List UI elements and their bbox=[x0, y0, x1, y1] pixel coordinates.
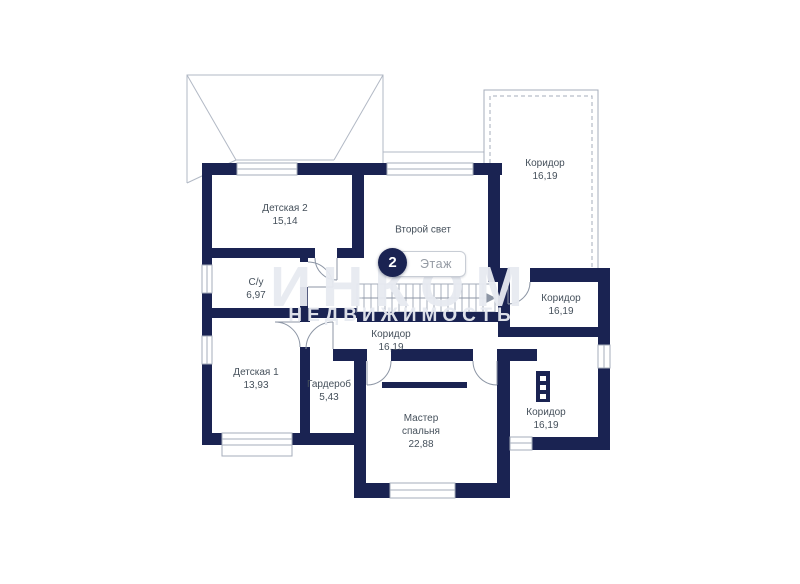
room-label-detskaya-2: Детская 2 15,14 bbox=[262, 203, 307, 229]
room-label-master-bedroom: Мастер спальня 22,88 bbox=[393, 413, 449, 451]
room-label-koridor-lower-right: Коридор 16,19 bbox=[526, 407, 566, 433]
room-label-koridor-upper-right: Коридор 16,19 bbox=[541, 293, 581, 319]
floor-badge: Этаж 2 bbox=[378, 248, 472, 278]
room-area: 16,19 bbox=[526, 420, 566, 433]
room-name: Коридор bbox=[525, 158, 565, 169]
room-name: Мастер спальня bbox=[402, 413, 440, 437]
room-label-koridor-center: Коридор 16,19 bbox=[371, 329, 411, 355]
watermark-subtitle: НЕДВИЖИМОСТЬ bbox=[288, 305, 515, 327]
room-label-vtoroy-svet: Второй свет bbox=[395, 225, 451, 238]
room-area: 13,93 bbox=[233, 380, 278, 393]
room-name: Гардероб bbox=[307, 379, 351, 390]
room-name: Коридор bbox=[526, 407, 566, 418]
room-label-koridor-terrace: Коридор 16,19 bbox=[525, 158, 565, 184]
floor-number: 2 bbox=[388, 254, 396, 271]
room-name: Второй свет bbox=[395, 225, 451, 236]
room-name: Коридор bbox=[541, 293, 581, 304]
floor-badge-label: Этаж bbox=[406, 257, 452, 271]
room-area: 16,19 bbox=[525, 171, 565, 184]
room-label-detskaya-1: Детская 1 13,93 bbox=[233, 367, 278, 393]
room-name: Коридор bbox=[371, 329, 411, 340]
room-label-su: С/у 6,97 bbox=[246, 277, 265, 303]
room-name: Детская 1 bbox=[233, 367, 278, 378]
room-area: 16,19 bbox=[371, 342, 411, 355]
room-name: С/у bbox=[249, 277, 264, 288]
room-area: 6,97 bbox=[246, 290, 265, 303]
room-area: 5,43 bbox=[307, 392, 351, 405]
room-name: Детская 2 bbox=[262, 203, 307, 214]
room-label-garderob: Гардероб 5,43 bbox=[307, 379, 351, 405]
wardrobe-bar bbox=[382, 382, 467, 388]
room-area: 16,19 bbox=[541, 306, 581, 319]
floor-number-circle: 2 bbox=[378, 248, 407, 277]
flue-icon bbox=[536, 371, 550, 402]
room-area: 15,14 bbox=[262, 216, 307, 229]
floor-plan-page: ИНКОМ НЕДВИЖИМОСТЬ Детская 2 15,14 С/у 6… bbox=[0, 0, 800, 584]
room-area: 22,88 bbox=[393, 438, 449, 451]
